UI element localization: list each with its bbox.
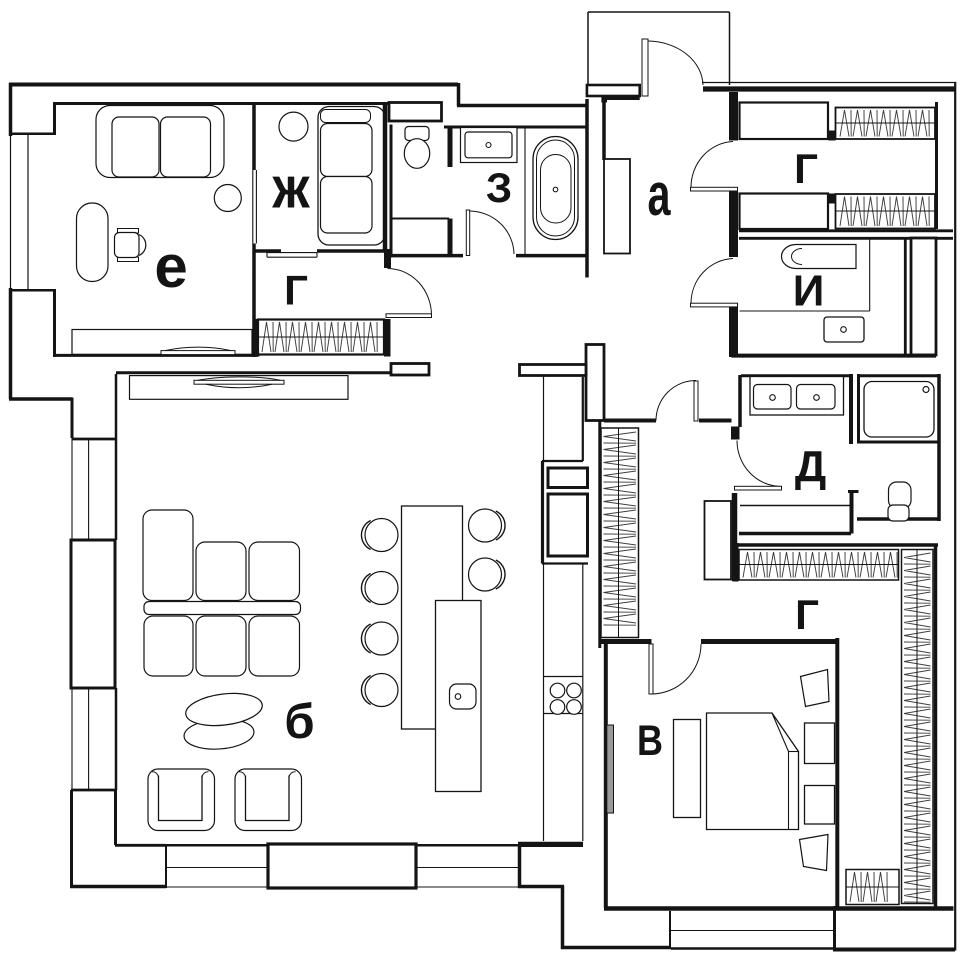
- svg-text:Г: Г: [794, 145, 818, 192]
- svg-text:а: а: [648, 161, 671, 228]
- svg-text:Г: Г: [795, 591, 819, 638]
- svg-text:Д: Д: [795, 443, 826, 492]
- svg-text:б: б: [284, 695, 314, 749]
- svg-text:З: З: [486, 164, 512, 211]
- svg-text:ж: ж: [272, 156, 311, 221]
- svg-text:е: е: [154, 233, 187, 300]
- svg-text:И: И: [793, 267, 825, 316]
- svg-text:В: В: [637, 717, 663, 765]
- svg-text:Г: Г: [284, 267, 308, 314]
